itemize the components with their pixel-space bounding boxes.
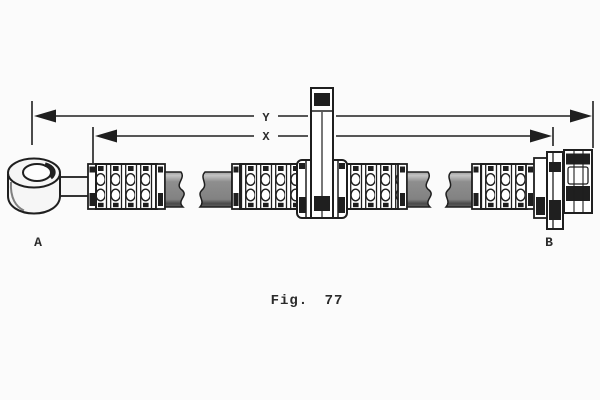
scanned-figure-page: Y X A B Fig. 77 bbox=[0, 0, 600, 400]
end-label-a: A bbox=[34, 235, 42, 250]
dimension-label-y: Y bbox=[262, 111, 270, 125]
figure-diagram: Y X A B Fig. 77 bbox=[0, 0, 600, 400]
protector-sleeve-1 bbox=[96, 164, 165, 209]
protector-sleeve-3 bbox=[472, 164, 535, 209]
banjo-eye-fitting bbox=[8, 159, 60, 214]
end-label-b: B bbox=[545, 235, 553, 250]
hose-neck bbox=[56, 177, 91, 196]
dimension-label-x: X bbox=[262, 130, 270, 144]
mounting-bracket-tab bbox=[311, 88, 333, 218]
figure-caption: Fig. 77 bbox=[271, 293, 344, 309]
